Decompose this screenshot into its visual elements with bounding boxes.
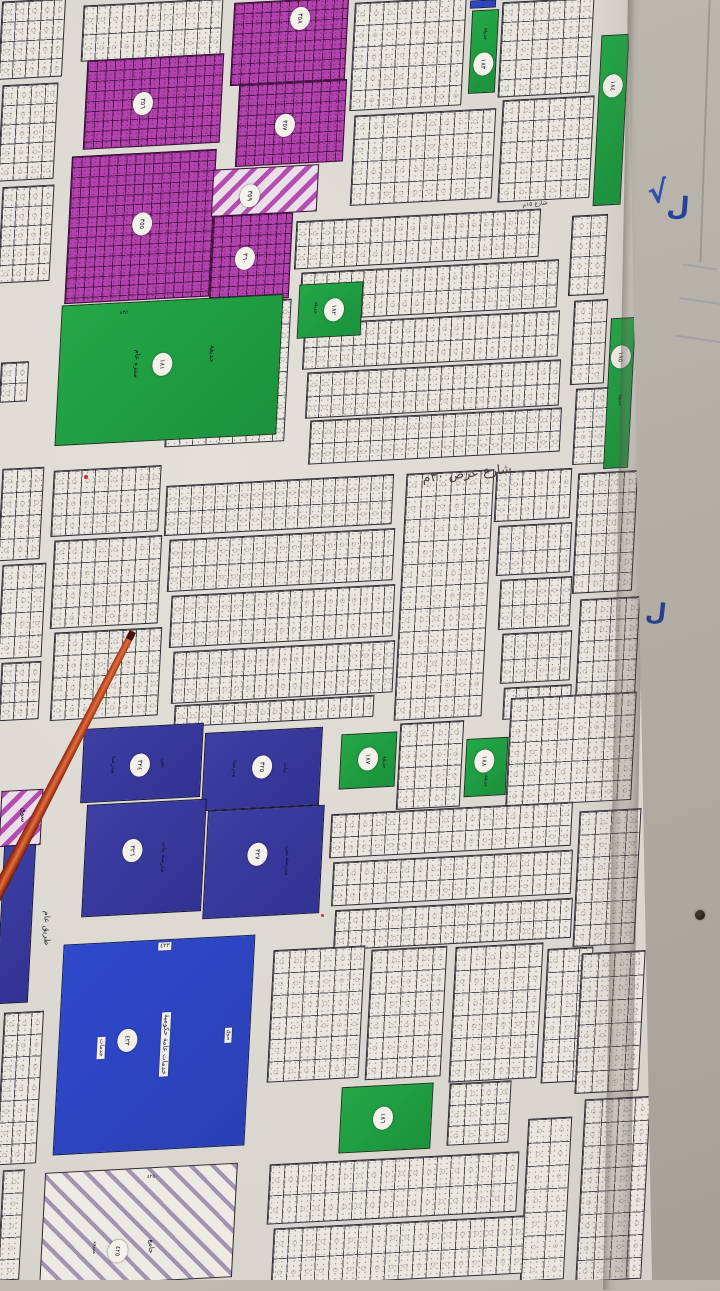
map-block-gr: ١٨٦: [338, 1082, 433, 1153]
block-label: بنين: [160, 758, 167, 768]
map-block-g: [505, 691, 637, 806]
handwritten-ink-mark: ل: [666, 191, 691, 223]
block-number-circle: ١٨٥: [610, 345, 631, 369]
map-block-gr: ١٨٢حديقة: [297, 281, 364, 339]
block-label: جامع: [147, 1240, 155, 1254]
block-label: حديقة: [617, 394, 623, 407]
map-block-in: ٣٢٧مدرسة بنين: [202, 805, 325, 920]
block-number-circle: ٤٢٥: [108, 1239, 129, 1263]
block-label: مدرسة بنات: [159, 842, 167, 873]
map-block-g: [169, 584, 395, 648]
red-pin-speck: [321, 914, 324, 917]
wall-streak: [679, 297, 720, 305]
handwritten-ink-mark: ل: [644, 597, 668, 627]
block-label: ٤٢٥٠: [147, 1174, 158, 1180]
block-label: حديقة: [208, 345, 216, 363]
block-number-circle: ١٨٧: [357, 747, 378, 771]
block-label: بنات: [282, 762, 289, 773]
map-block-g: [574, 950, 645, 1094]
block-number-circle: ٣٢٥: [251, 755, 272, 779]
map-block-p: ٣٥٨: [230, 0, 349, 86]
block-label: خدمات عامة حكومية: [159, 1012, 171, 1077]
block-label: حديقة: [482, 775, 488, 788]
map-block-gr: ١٨٤: [593, 34, 630, 206]
block-label: سوق: [224, 1027, 232, 1042]
block-number-circle: ١٨٣: [472, 52, 493, 76]
photo-of-zoning-map: { "map": { "blocks": [ {"x":0,"y":0,"w":…: [0, 0, 720, 1280]
map-block-g: [0, 82, 58, 181]
map-block-in: ٣٢٦مدرسة بنات: [81, 799, 207, 918]
block-number-circle: ٣٥٦: [132, 92, 153, 116]
block-number-circle: ٣٥٧: [274, 113, 295, 137]
pin-hole-dot: [695, 910, 705, 920]
map-block-gr: ١٨١منتزه عامحديقة٤٣٥: [54, 294, 283, 446]
map-block-p: ٣٦٠: [209, 212, 293, 303]
map-block-in: ٣٢٤مدرسةبنين: [80, 723, 204, 804]
map-block-g: [0, 661, 41, 721]
map-block-g: [0, 563, 46, 660]
map-block-g: [0, 1011, 44, 1166]
map-block-g: [0, 0, 66, 80]
map-block-hw: ٤٢٥جامع٤٢٥٠مسجد: [39, 1163, 238, 1288]
map-block-g: [0, 184, 54, 283]
red-pin-speck: [84, 475, 88, 479]
map-block-gr: ١٨٥حديقة: [603, 317, 636, 469]
map-block-g: [500, 630, 573, 684]
block-number-circle: ٣٦٠: [234, 246, 255, 270]
map-block-gr: ١٨٨حديقة: [464, 737, 509, 797]
block-number-circle: ٣٥٥: [131, 211, 152, 235]
block-label: مدرسة: [109, 756, 116, 774]
road-label: طريق عام: [43, 911, 52, 945]
map-block-g: [349, 0, 467, 111]
road-label: طريق عام ٤٠م: [636, 272, 646, 329]
map-block-g: [50, 535, 162, 629]
map-block-g: [294, 208, 541, 269]
map-block-g: [520, 1117, 572, 1282]
map-block-p: ٣٥٧: [235, 79, 347, 167]
block-number-circle: ٣٢٧: [246, 842, 267, 866]
block-label: حديقة: [381, 756, 387, 769]
map-block-g: [81, 0, 224, 62]
map-block-ro: ٤٢٣٤٢٣خدمات عامة حكوميةخدماتسوق: [53, 935, 256, 1156]
block-number-circle: ١٨٦: [373, 1106, 394, 1130]
map-block-g: [50, 465, 161, 537]
block-number-circle: ٣٥٨: [289, 6, 310, 30]
block-label: ٤٢٣: [158, 942, 172, 951]
map-block-ro: [470, 0, 496, 9]
block-label: حديقة: [482, 27, 488, 40]
map-block-g: [171, 640, 395, 704]
map-block-g: [329, 802, 573, 859]
map-block-g: [0, 467, 44, 562]
map-block-g: [267, 1151, 520, 1224]
block-number-circle: ٣٢٤: [129, 753, 150, 777]
map-block-g: [572, 808, 641, 947]
block-label: خدمات: [96, 1037, 105, 1059]
block-label: مسجد: [91, 1241, 97, 1254]
block-number-circle: ١٨٢: [323, 298, 344, 322]
map-block-g: [331, 850, 573, 907]
map-block-g: [446, 1080, 511, 1146]
map-block-g: [267, 945, 366, 1082]
map-block-g: [496, 522, 573, 576]
map-sheet: ٣٥٨٣٥٦٣٥٧٣٥٥٣٥٩٣٦٠١٨١منتزه عامحديقة٤٣٥١٨…: [0, 0, 720, 1280]
wall-streak: [683, 264, 717, 271]
map-block-g: [570, 299, 608, 385]
block-label: سوق: [19, 808, 27, 823]
road-label: شارع ١٥م: [522, 199, 548, 209]
block-label: حديقة: [312, 302, 318, 315]
map-block-g: [498, 576, 573, 630]
block-number-circle: ٣٢٦: [122, 839, 143, 863]
block-label: مدرسة بنين: [283, 846, 291, 876]
map-block-g: [164, 474, 394, 536]
map-block-g: [498, 0, 595, 98]
map-block-g: [568, 214, 608, 296]
map-block-gr: ١٨٧حديقة: [339, 731, 398, 789]
block-number-circle: ١٨٨: [474, 749, 495, 773]
map-block-g: [572, 470, 638, 594]
map-block-g: [0, 1169, 25, 1281]
map-block-g: [396, 720, 464, 810]
map-block-g: [394, 469, 495, 721]
map-block-g: [575, 1096, 650, 1282]
block-number-circle: ١٨٤: [602, 74, 623, 98]
map-block-hp: ٣٥٩: [211, 164, 319, 217]
map-block-gr: ١٨٣حديقة: [468, 9, 499, 94]
block-number-circle: ١٨١: [152, 353, 173, 377]
map-block-p: ٣٥٥: [64, 149, 217, 304]
map-block-g: [350, 108, 497, 206]
map-block-g: [449, 942, 544, 1082]
map-block-p: ٣٥٦: [83, 53, 224, 150]
wall-streak: [676, 335, 720, 343]
map-block-g: [365, 946, 448, 1081]
wall-crease: [699, 0, 710, 262]
map-block-in: ٣٢٥مدرسةبنات: [201, 727, 323, 811]
block-label: منتزه عام: [132, 349, 140, 378]
map-block-g: [497, 95, 594, 202]
map-block-g: [271, 1215, 526, 1286]
map-block-g: [0, 361, 29, 403]
map-block-g: [167, 528, 395, 592]
block-label: مدرسة: [231, 760, 238, 778]
block-number-circle: ٤٢٣: [117, 1028, 138, 1052]
map-block-g: [50, 627, 162, 721]
block-number-circle: ٣٥٩: [240, 184, 261, 208]
road-label: طريق عام ٤٠م: [654, 924, 664, 981]
block-label: ٤٣٥: [120, 310, 128, 315]
